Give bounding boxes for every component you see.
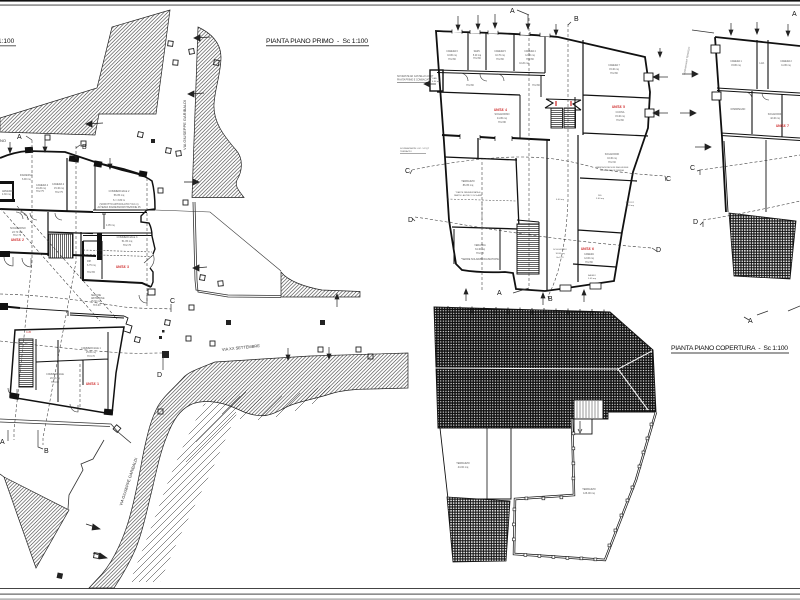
svg-text:*PARTE PAVIMENTATA E: *PARTE PAVIMENTATA E xyxy=(455,191,481,194)
svg-text:H=2.70: H=2.70 xyxy=(476,252,484,255)
svg-text:H=2.80: H=2.80 xyxy=(473,58,481,60)
svg-text:CAB.: CAB. xyxy=(432,77,437,80)
svg-text:H=2.80: H=2.80 xyxy=(610,73,618,75)
svg-text:VERANDA: VERANDA xyxy=(474,244,486,247)
svg-text:2.20 mq: 2.20 mq xyxy=(626,205,635,207)
svg-text:15.40 mq: 15.40 mq xyxy=(609,69,619,71)
svg-text:41.80 mq: 41.80 mq xyxy=(497,117,508,120)
svg-text:25.80 mq: 25.80 mq xyxy=(86,351,97,354)
svg-text:UNITA' 6: UNITA' 6 xyxy=(581,247,594,251)
svg-text:BAGNO: BAGNO xyxy=(588,274,596,277)
svg-text:15.40 mq: 15.40 mq xyxy=(615,116,625,118)
svg-text:PIANTA PIANO COPERTURA - Sc: PIANTA PIANO COPERTURA - Sc 1:100 xyxy=(671,345,788,352)
svg-text:12.00 mq: 12.00 mq xyxy=(584,258,594,260)
svg-text:6.90 mq: 6.90 mq xyxy=(22,178,31,181)
svg-text:56.05 mq: 56.05 mq xyxy=(114,194,125,197)
svg-text:UNITA' 5: UNITA' 5 xyxy=(612,105,625,109)
svg-text:TERRAZZO: TERRAZZO xyxy=(456,462,470,465)
svg-text:A: A xyxy=(792,11,797,18)
svg-text:B: B xyxy=(574,16,579,23)
svg-text:H=2.75: H=2.75 xyxy=(55,191,63,194)
svg-text:UNITA' 7: UNITA' 7 xyxy=(776,124,789,128)
svg-text:RIPOST.: RIPOST. xyxy=(626,202,635,204)
svg-text:LG6.: LG6. xyxy=(760,63,765,65)
svg-text:H=2.65: H=2.65 xyxy=(87,271,95,274)
svg-text:H=2.80: H=2.80 xyxy=(526,59,534,61)
svg-text:COMMERCIALE 3: COMMERCIALE 3 xyxy=(117,236,138,239)
svg-text:CAMERA 4: CAMERA 4 xyxy=(524,50,536,53)
svg-text:4.30 mq: 4.30 mq xyxy=(2,193,11,196)
svg-text:44.00 mq: 44.00 mq xyxy=(458,466,469,469)
svg-text:D: D xyxy=(157,372,162,379)
svg-text:VIA GIUSEPPE GARIBALDI: VIA GIUSEPPE GARIBALDI xyxy=(182,100,187,150)
svg-text:CAMERA 6: CAMERA 6 xyxy=(446,50,458,53)
svg-text:5.45 mq: 5.45 mq xyxy=(588,278,597,280)
svg-text:D: D xyxy=(656,247,661,254)
svg-text:10.80 mq: 10.80 mq xyxy=(447,55,457,57)
svg-text:86.05 mq: 86.05 mq xyxy=(463,184,474,187)
svg-text:RIP.: RIP. xyxy=(87,260,92,263)
svg-text:51.05 mq: 51.05 mq xyxy=(122,240,133,243)
svg-text:COMMERCIALE 2: COMMERCIALE 2 xyxy=(109,190,130,193)
svg-text:TERRAZZO: TERRAZZO xyxy=(582,488,596,491)
svg-text:H=2.80: H=2.80 xyxy=(616,120,624,122)
svg-text:CUCINA: CUCINA xyxy=(616,111,625,114)
svg-text:SOGGIORNO: SOGGIORNO xyxy=(553,249,567,251)
svg-text:H=2.80: H=2.80 xyxy=(496,59,504,61)
svg-text:3.60 mq: 3.60 mq xyxy=(596,198,605,200)
svg-text:TERRAZZO: TERRAZZO xyxy=(400,150,412,153)
svg-text:10.70 mq: 10.70 mq xyxy=(495,55,505,57)
svg-text:A: A xyxy=(17,134,22,141)
svg-text:NO: NO xyxy=(0,138,6,143)
svg-text:15.80 mq: 15.80 mq xyxy=(731,65,741,67)
svg-text:A: A xyxy=(0,439,5,446)
svg-text:126.00 mq: 126.00 mq xyxy=(583,492,595,495)
svg-text:H=3.00: H=3.00 xyxy=(93,305,101,307)
svg-text:DISIMPEGNO: DISIMPEGNO xyxy=(731,109,746,111)
svg-text:H=2.80: H=2.80 xyxy=(585,262,593,264)
svg-text:5.20 mq: 5.20 mq xyxy=(473,55,482,57)
svg-text:PIANTA PRIMO E COMBACIATO: PIANTA PRIMO E COMBACIATO xyxy=(397,79,431,82)
svg-text:C: C xyxy=(405,168,410,175)
svg-text:SOGGIORNO: SOGGIORNO xyxy=(494,113,509,116)
svg-text:SOGGIORNO: SOGGIORNO xyxy=(605,154,620,156)
svg-text:LA SUPERFICIE MINIMA: LA SUPERFICIE MINIMA xyxy=(600,169,624,172)
svg-text:I-I-B: I-I-B xyxy=(26,330,31,334)
svg-text:CAMERA 7: CAMERA 7 xyxy=(608,64,620,67)
svg-text:H=2.76: H=2.76 xyxy=(123,244,132,247)
svg-text:A: A xyxy=(748,318,753,325)
svg-text:CAMERA 5: CAMERA 5 xyxy=(494,50,506,53)
svg-text:*SERRE SOLARI/BIOCLIMATICHE: *SERRE SOLARI/BIOCLIMATICHE xyxy=(461,258,499,261)
svg-text:H=2.75: H=2.75 xyxy=(36,190,44,193)
svg-text:42.40 mq: 42.40 mq xyxy=(770,118,780,120)
svg-text:SOVRASTANTE LOC. 5 P.QT: SOVRASTANTE LOC. 5 P.QT xyxy=(400,147,430,150)
svg-text:1:100: 1:100 xyxy=(0,38,15,45)
svg-text:16.30 mq: 16.30 mq xyxy=(607,158,617,160)
svg-text:*ABBITAZIONE NON RAGGIUNGE: *ABBITAZIONE NON RAGGIUNGE xyxy=(596,166,629,169)
svg-text:INGRESSO: INGRESSO xyxy=(20,174,33,177)
svg-text:6.60 mq: 6.60 mq xyxy=(556,199,565,201)
svg-text:12.80 mq: 12.80 mq xyxy=(525,55,535,57)
svg-text:CAMERA 1: CAMERA 1 xyxy=(730,60,742,63)
svg-text:11.80 mq: 11.80 mq xyxy=(781,65,791,67)
svg-text:A: A xyxy=(510,8,515,15)
svg-text:4.90 mq: 4.90 mq xyxy=(432,81,441,83)
svg-text:A: A xyxy=(497,290,502,297)
svg-text:C: C xyxy=(690,165,695,172)
svg-text:C: C xyxy=(170,298,175,305)
svg-text:SOVRASTE AD CASTELLO A P.QT: SOVRASTE AD CASTELLO A P.QT xyxy=(397,75,434,78)
svg-text:H=2.80: H=2.80 xyxy=(498,121,506,124)
svg-text:H=2.76: H=2.76 xyxy=(556,257,564,259)
svg-text:4.05 mq: 4.05 mq xyxy=(106,224,115,227)
svg-text:UNITA' 1: UNITA' 1 xyxy=(86,382,99,386)
svg-text:10.20 mq: 10.20 mq xyxy=(519,63,529,65)
svg-text:H=2.80: H=2.80 xyxy=(532,85,540,87)
svg-text:UNITA' 3: UNITA' 3 xyxy=(116,265,129,269)
svg-text:C: C xyxy=(666,176,671,183)
svg-text:20.90 mq: 20.90 mq xyxy=(50,377,61,380)
svg-text:H=2.76: H=2.76 xyxy=(13,234,22,237)
svg-text:6.75 mq: 6.75 mq xyxy=(87,264,96,267)
svg-text:SOGGIORNO: SOGGIORNO xyxy=(768,114,783,116)
svg-text:COMMERCIALE 1: COMMERCIALE 1 xyxy=(81,347,101,350)
svg-text:COMMERCIALE: COMMERCIALE xyxy=(46,373,64,376)
svg-text:ALTEZZA INGRESSO/ROTAZIONE 45: ALTEZZA INGRESSO/ROTAZIONE 45 xyxy=(97,206,141,209)
svg-text:B: B xyxy=(44,448,49,455)
svg-text:H=2.80: H=2.80 xyxy=(466,85,474,87)
svg-text:34.40 mq: 34.40 mq xyxy=(475,248,486,251)
svg-text:TERRAZZO: TERRAZZO xyxy=(461,180,475,183)
svg-text:DIS.: DIS. xyxy=(598,195,603,197)
svg-text:PIANTA PIANO PRIMO - Sc 1:10: PIANTA PIANO PRIMO - Sc 1:100 xyxy=(266,38,368,45)
svg-text:UNITA' 4: UNITA' 4 xyxy=(494,108,507,112)
svg-text:SEZIONE: SEZIONE xyxy=(91,295,102,297)
svg-text:UNITA' 2: UNITA' 2 xyxy=(11,238,24,242)
svg-text:B: B xyxy=(82,144,87,151)
svg-text:H=2.80: H=2.80 xyxy=(448,59,456,61)
svg-text:PARTE LASTRICO SOLARE: PARTE LASTRICO SOLARE xyxy=(454,194,483,197)
svg-text:S = 3.80 m: S = 3.80 m xyxy=(113,199,125,202)
svg-text:H=3.70: H=3.70 xyxy=(87,355,95,358)
svg-text:CAMERA 2: CAMERA 2 xyxy=(780,60,792,63)
svg-text:D: D xyxy=(693,219,698,226)
svg-text:CAMERA 2: CAMERA 2 xyxy=(52,183,65,186)
svg-text:H=2.30: H=2.30 xyxy=(608,162,616,164)
svg-text:15.40 mq: 15.40 mq xyxy=(54,187,65,190)
svg-text:CAMERA: CAMERA xyxy=(584,253,594,256)
svg-text:H=3.00: H=3.00 xyxy=(51,381,59,384)
svg-text:16.80 mq: 16.80 mq xyxy=(555,253,565,255)
svg-text:SERV.: SERV. xyxy=(474,51,481,53)
